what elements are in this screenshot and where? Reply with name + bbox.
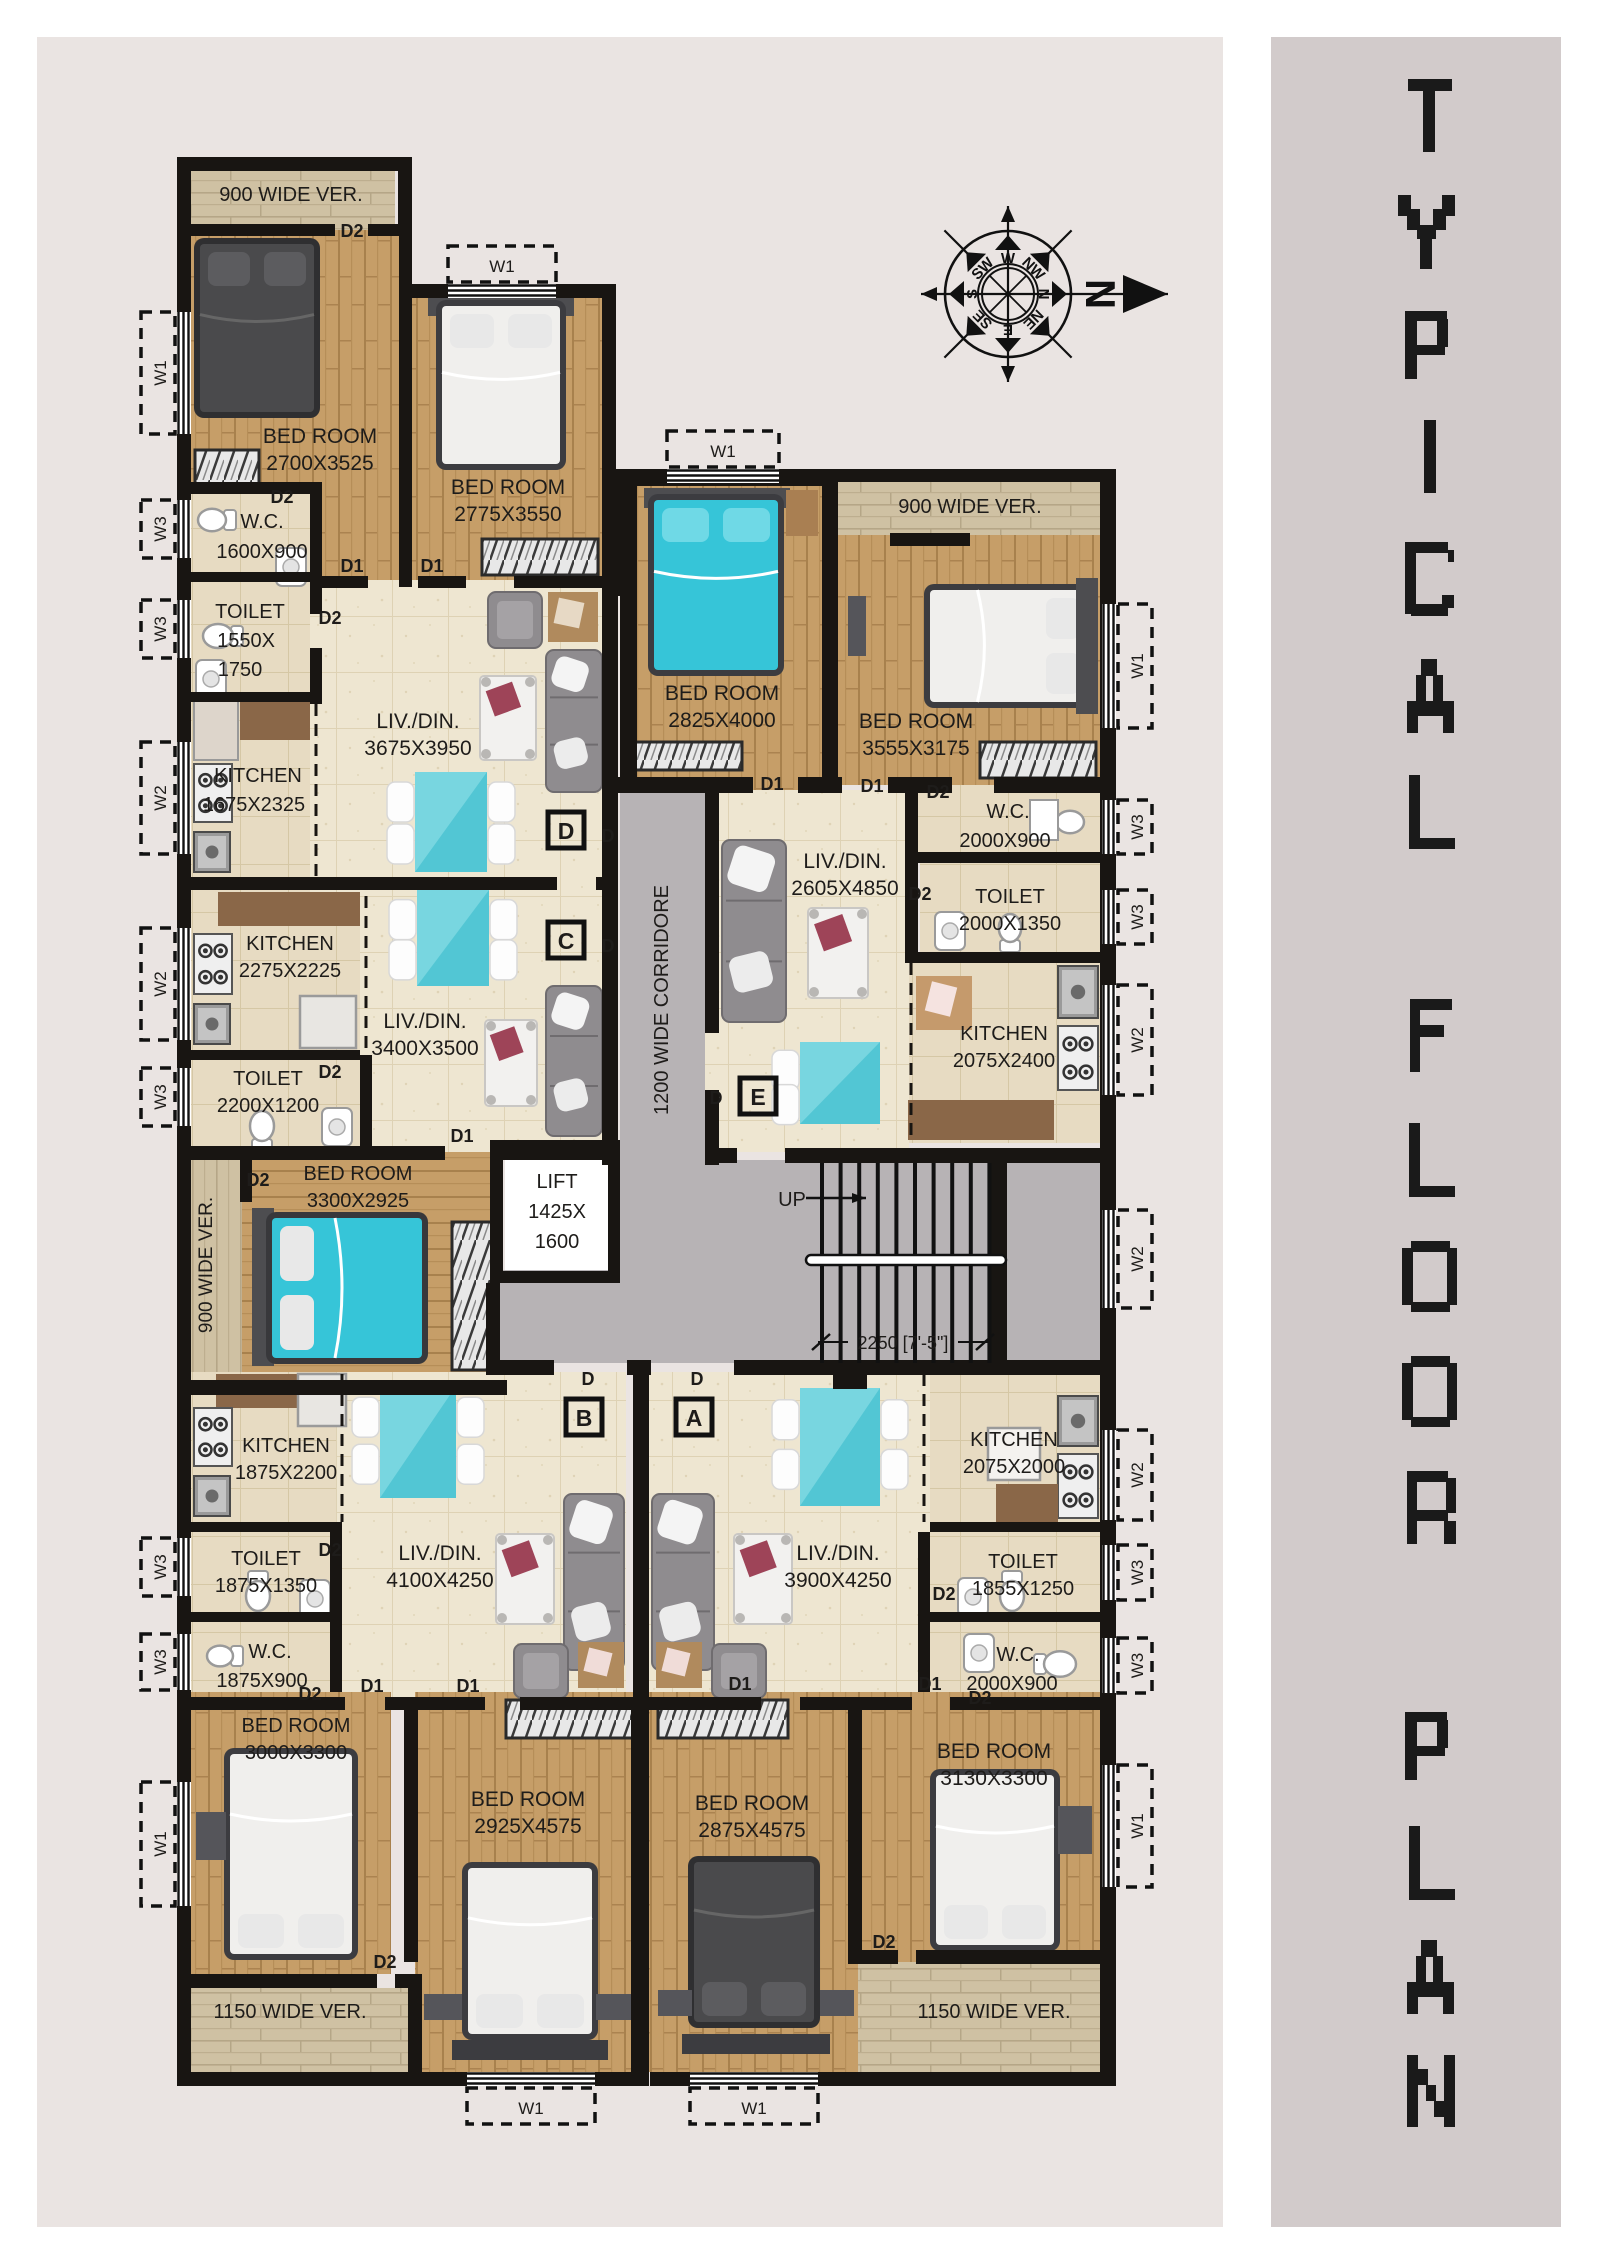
svg-text:BED ROOM: BED ROOM bbox=[859, 710, 973, 733]
svg-text:1600: 1600 bbox=[535, 1231, 580, 1253]
svg-text:W3: W3 bbox=[151, 516, 170, 542]
svg-text:W1: W1 bbox=[489, 257, 515, 276]
svg-text:D: D bbox=[582, 1369, 595, 1389]
svg-text:W1: W1 bbox=[1128, 653, 1147, 679]
svg-text:KITCHEN: KITCHEN bbox=[246, 933, 334, 955]
svg-text:KITCHEN: KITCHEN bbox=[960, 1023, 1048, 1045]
svg-text:W1: W1 bbox=[710, 442, 736, 461]
svg-text:D2: D2 bbox=[908, 884, 931, 904]
svg-text:W.C.: W.C. bbox=[986, 801, 1029, 823]
svg-text:W1: W1 bbox=[1128, 1813, 1147, 1839]
svg-text:D1: D1 bbox=[360, 1676, 383, 1696]
svg-text:KITCHEN: KITCHEN bbox=[970, 1429, 1058, 1451]
svg-text:B: B bbox=[576, 1405, 593, 1431]
svg-text:A: A bbox=[686, 1405, 703, 1431]
svg-text:3400X3500: 3400X3500 bbox=[371, 1037, 478, 1060]
svg-text:1750: 1750 bbox=[218, 659, 263, 681]
svg-text:D1: D1 bbox=[860, 776, 883, 796]
svg-text:2825X4000: 2825X4000 bbox=[668, 709, 775, 732]
svg-text:1550X: 1550X bbox=[217, 630, 275, 652]
svg-text:N: N bbox=[1035, 289, 1052, 300]
svg-text:D1: D1 bbox=[918, 1674, 941, 1694]
svg-text:LIV./DIN.: LIV./DIN. bbox=[796, 1542, 879, 1565]
svg-text:1600X900: 1600X900 bbox=[216, 541, 307, 563]
svg-text:1875X1350: 1875X1350 bbox=[215, 1575, 317, 1597]
svg-text:2700X3525: 2700X3525 bbox=[266, 452, 373, 475]
svg-text:BED ROOM: BED ROOM bbox=[471, 1788, 585, 1811]
svg-text:2925X4575: 2925X4575 bbox=[474, 1815, 581, 1838]
svg-text:W2: W2 bbox=[151, 971, 170, 997]
svg-text:W3: W3 bbox=[1128, 1653, 1147, 1679]
svg-text:1675X2325: 1675X2325 bbox=[203, 794, 305, 816]
svg-text:LIV./DIN.: LIV./DIN. bbox=[376, 710, 459, 733]
svg-text:3675X3950: 3675X3950 bbox=[364, 737, 471, 760]
svg-text:W.C.: W.C. bbox=[240, 511, 283, 533]
svg-text:D2: D2 bbox=[968, 1688, 991, 1708]
svg-text:E: E bbox=[1003, 321, 1013, 338]
svg-text:1200 WIDE CORRIDORE: 1200 WIDE CORRIDORE bbox=[651, 885, 673, 1115]
svg-text:4100X4250: 4100X4250 bbox=[386, 1569, 493, 1592]
svg-text:S: S bbox=[964, 289, 981, 299]
svg-text:KITCHEN: KITCHEN bbox=[242, 1435, 330, 1457]
svg-text:W3: W3 bbox=[1128, 1560, 1147, 1586]
svg-text:D1: D1 bbox=[760, 774, 783, 794]
svg-text:D: D bbox=[710, 1088, 723, 1108]
svg-text:KITCHEN: KITCHEN bbox=[214, 765, 302, 787]
svg-text:BED ROOM: BED ROOM bbox=[263, 425, 377, 448]
svg-text:LIV./DIN.: LIV./DIN. bbox=[383, 1010, 466, 1033]
svg-text:D2: D2 bbox=[270, 487, 293, 507]
svg-text:D2: D2 bbox=[298, 1684, 321, 1704]
svg-text:W2: W2 bbox=[1128, 1027, 1147, 1053]
svg-text:D2: D2 bbox=[318, 1062, 341, 1082]
svg-text:2605X4850: 2605X4850 bbox=[791, 877, 898, 900]
svg-text:D2: D2 bbox=[340, 221, 363, 241]
svg-text:D2: D2 bbox=[246, 1170, 269, 1190]
svg-text:W3: W3 bbox=[151, 1084, 170, 1110]
svg-text:D1: D1 bbox=[420, 556, 443, 576]
svg-text:W2: W2 bbox=[1128, 1462, 1147, 1488]
svg-text:W3: W3 bbox=[151, 616, 170, 642]
svg-text:2775X3550: 2775X3550 bbox=[454, 503, 561, 526]
svg-text:2250 [7'-5"]: 2250 [7'-5"] bbox=[858, 1333, 949, 1353]
svg-text:1855X1250: 1855X1250 bbox=[972, 1578, 1074, 1600]
svg-text:D2: D2 bbox=[926, 782, 949, 802]
svg-text:W3: W3 bbox=[151, 1649, 170, 1675]
svg-text:2000X900: 2000X900 bbox=[959, 830, 1050, 852]
svg-text:D: D bbox=[602, 936, 615, 956]
svg-text:W2: W2 bbox=[151, 785, 170, 811]
svg-text:W.C.: W.C. bbox=[248, 1641, 291, 1663]
svg-text:W: W bbox=[1001, 250, 1016, 267]
svg-text:C: C bbox=[558, 928, 575, 954]
svg-text:D: D bbox=[691, 1369, 704, 1389]
svg-text:BED ROOM: BED ROOM bbox=[695, 1792, 809, 1815]
svg-text:D1: D1 bbox=[340, 556, 363, 576]
svg-text:W1: W1 bbox=[741, 2099, 767, 2118]
svg-text:LIV./DIN.: LIV./DIN. bbox=[398, 1542, 481, 1565]
svg-text:D2: D2 bbox=[373, 1952, 396, 1972]
svg-text:BED ROOM: BED ROOM bbox=[451, 476, 565, 499]
svg-text:2000X1350: 2000X1350 bbox=[959, 913, 1061, 935]
svg-text:TOILET: TOILET bbox=[231, 1548, 301, 1570]
svg-text:D2: D2 bbox=[872, 1932, 895, 1952]
svg-text:LIV./DIN.: LIV./DIN. bbox=[803, 850, 886, 873]
svg-text:TOILET: TOILET bbox=[215, 601, 285, 623]
svg-text:2075X2400: 2075X2400 bbox=[953, 1050, 1055, 1072]
svg-text:TOILET: TOILET bbox=[233, 1068, 303, 1090]
svg-text:900 WIDE VER.: 900 WIDE VER. bbox=[219, 184, 362, 206]
svg-text:W1: W1 bbox=[151, 1831, 170, 1857]
svg-text:BED ROOM: BED ROOM bbox=[665, 682, 779, 705]
svg-text:W1: W1 bbox=[518, 2099, 544, 2118]
svg-text:900 WIDE VER.: 900 WIDE VER. bbox=[196, 1197, 217, 1333]
svg-text:2275X2225: 2275X2225 bbox=[239, 960, 341, 982]
svg-text:3300X2925: 3300X2925 bbox=[307, 1190, 409, 1212]
svg-text:D1: D1 bbox=[450, 1126, 473, 1146]
svg-text:W3: W3 bbox=[151, 1554, 170, 1580]
svg-text:UP: UP bbox=[778, 1189, 806, 1211]
svg-text:3130X3300: 3130X3300 bbox=[940, 1767, 1047, 1790]
svg-text:1150 WIDE VER.: 1150 WIDE VER. bbox=[213, 2001, 366, 2023]
svg-text:N: N bbox=[1077, 279, 1124, 309]
svg-text:D1: D1 bbox=[728, 1674, 751, 1694]
svg-text:D: D bbox=[558, 818, 575, 844]
svg-text:D1: D1 bbox=[456, 1676, 479, 1696]
svg-text:LIFT: LIFT bbox=[536, 1171, 577, 1193]
svg-text:BED ROOM: BED ROOM bbox=[304, 1163, 413, 1185]
svg-text:900 WIDE VER.: 900 WIDE VER. bbox=[898, 496, 1041, 518]
svg-text:W1: W1 bbox=[151, 360, 170, 386]
svg-text:D2: D2 bbox=[318, 1540, 341, 1560]
svg-text:D: D bbox=[602, 826, 615, 846]
svg-text:TOILET: TOILET bbox=[988, 1551, 1058, 1573]
svg-text:D2: D2 bbox=[932, 1584, 955, 1604]
svg-text:D2: D2 bbox=[318, 608, 341, 628]
svg-text:3900X4250: 3900X4250 bbox=[784, 1569, 891, 1592]
svg-text:TOILET: TOILET bbox=[975, 886, 1045, 908]
svg-text:2200X1200: 2200X1200 bbox=[217, 1095, 319, 1117]
svg-text:1875X2200: 1875X2200 bbox=[235, 1462, 337, 1484]
svg-text:W2: W2 bbox=[1128, 1246, 1147, 1272]
svg-text:3555X3175: 3555X3175 bbox=[862, 737, 969, 760]
svg-text:2875X4575: 2875X4575 bbox=[698, 1819, 805, 1842]
svg-text:E: E bbox=[750, 1084, 765, 1110]
svg-text:W3: W3 bbox=[1128, 814, 1147, 840]
svg-text:1425X: 1425X bbox=[528, 1201, 586, 1223]
svg-text:BED ROOM: BED ROOM bbox=[937, 1740, 1051, 1763]
svg-text:2075X2000: 2075X2000 bbox=[963, 1456, 1065, 1478]
svg-text:1875X900: 1875X900 bbox=[216, 1670, 307, 1692]
svg-text:BED ROOM: BED ROOM bbox=[242, 1715, 351, 1737]
svg-text:3000X3300: 3000X3300 bbox=[245, 1742, 347, 1764]
svg-text:W.C.: W.C. bbox=[996, 1644, 1039, 1666]
svg-text:W3: W3 bbox=[1128, 904, 1147, 930]
svg-text:1150 WIDE VER.: 1150 WIDE VER. bbox=[917, 2001, 1070, 2023]
